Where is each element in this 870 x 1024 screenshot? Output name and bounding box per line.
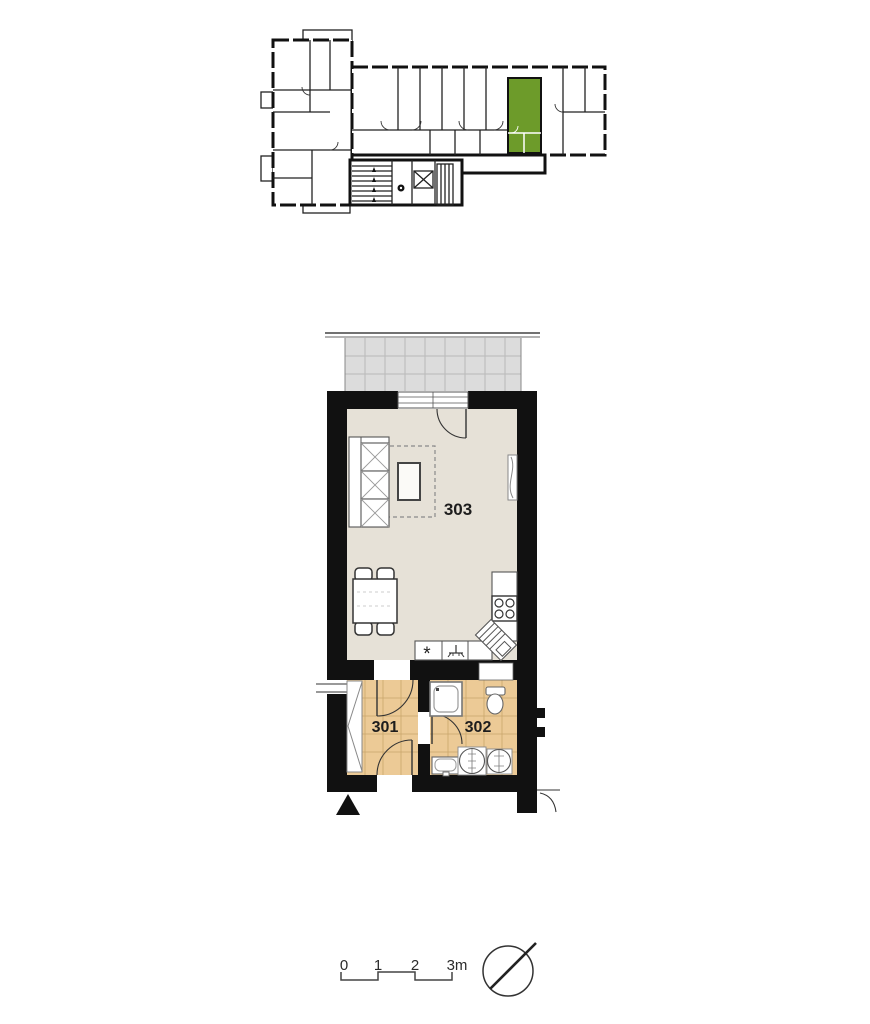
north-compass-icon [483, 943, 536, 996]
entrance-marker [336, 794, 360, 815]
shower [430, 682, 462, 716]
scale-bar: 0 1 2 3m [340, 957, 468, 980]
coffee-table [398, 463, 420, 500]
washing-machine-mark: * [423, 644, 431, 665]
balcony [325, 333, 540, 391]
dining-chair [355, 622, 372, 635]
washbasin-icon [432, 757, 459, 776]
unit-plan: * [316, 333, 560, 815]
dining-table [353, 579, 397, 623]
sofa [349, 437, 389, 527]
room-301-label: 301 [372, 719, 399, 736]
stove-icon [492, 596, 517, 621]
room-302-label: 302 [465, 719, 492, 736]
overview-plan [261, 30, 605, 213]
dryer-icon [487, 749, 512, 774]
radiator [508, 455, 517, 500]
room-303-label: 303 [444, 500, 472, 519]
scale-tick-3: 3m [447, 957, 468, 974]
balcony-window [398, 392, 468, 408]
balcony-railing [325, 333, 540, 337]
scale-tick-0: 0 [340, 957, 348, 974]
washer-icon [458, 747, 486, 775]
floor-plan-page: * [0, 0, 870, 1024]
dining-chair [377, 622, 394, 635]
highlighted-unit[interactable] [508, 78, 541, 153]
wardrobe [347, 681, 362, 772]
